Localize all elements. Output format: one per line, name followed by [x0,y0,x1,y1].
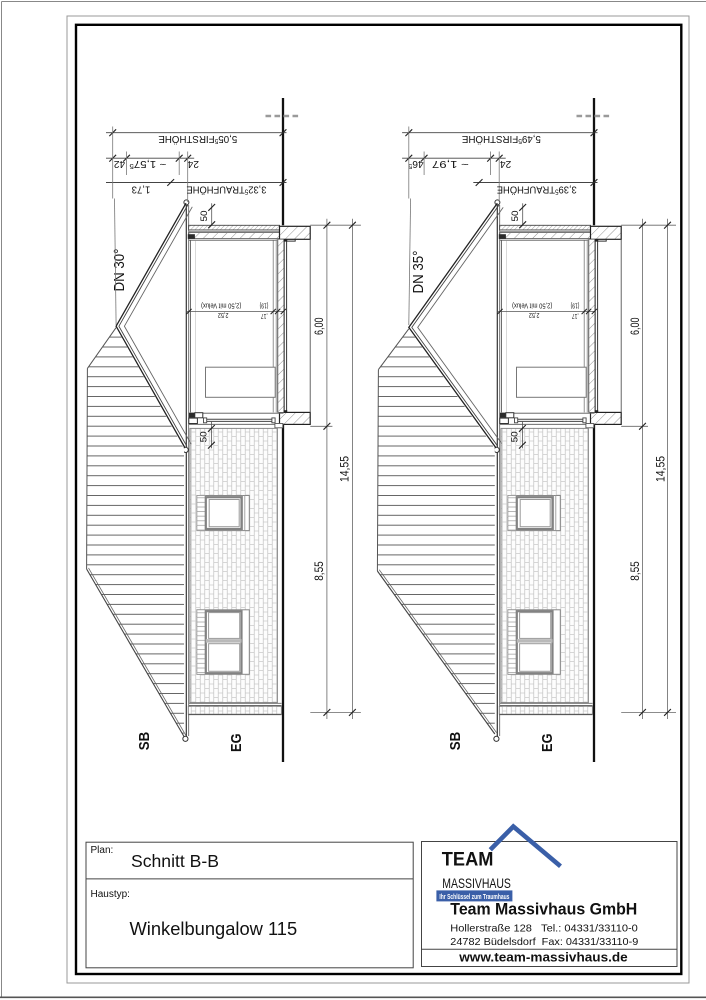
svg-text:5,055FIRSTHÖHE: 5,055FIRSTHÖHE [158,133,237,145]
svg-text:24: 24 [187,158,199,169]
svg-text:TEAM: TEAM [442,849,494,871]
svg-text:8,55: 8,55 [312,561,326,581]
svg-text:42: 42 [114,158,126,169]
svg-text:8,55: 8,55 [628,561,642,581]
svg-text:24: 24 [500,158,512,169]
svg-text:(2,50 mit Velux): (2,50 mit Velux) [201,301,241,310]
svg-text:1,73: 1,73 [131,183,150,194]
svg-text:Winkelbungalow 115: Winkelbungalow 115 [130,918,298,939]
svg-text:3,325TRAUFHÖHE: 3,325TRAUFHÖHE [186,183,266,195]
svg-text:14,55: 14,55 [653,456,667,482]
svg-text:Plan:: Plan: [91,845,114,856]
svg-text:Haustyp:: Haustyp: [91,889,130,900]
svg-text:DN 30°: DN 30° [111,248,128,291]
svg-text:50: 50 [199,211,210,222]
svg-text:~ 1,575: ~ 1,575 [129,158,166,169]
svg-text:14,55: 14,55 [338,456,352,482]
svg-text:3,395TRAUFHÖHE: 3,395TRAUFHÖHE [497,183,577,195]
svg-text:2,52: 2,52 [218,311,229,320]
svg-text:www.team-massivhaus.de: www.team-massivhaus.de [458,951,628,965]
svg-text:DN 35°: DN 35° [410,250,427,293]
svg-text:24782 Büdelsdorf Fax: 04331/3: 24782 Büdelsdorf Fax: 04331/33110-9 [450,937,638,948]
svg-text:5,495FIRSTHÖHE: 5,495FIRSTHÖHE [462,133,541,145]
svg-text:465: 465 [408,158,423,169]
svg-text:MASSIVHAUS: MASSIVHAUS [442,876,511,891]
svg-text:Hollerstraße 128 Tel.: 04331: Hollerstraße 128 Tel.: 04331/33110-0 [450,923,638,934]
svg-text:(19): (19) [260,301,269,310]
svg-text:SB: SB [137,732,153,751]
svg-text:Team Massivhaus GmbH: Team Massivhaus GmbH [450,900,637,919]
svg-text:6,00: 6,00 [628,317,642,335]
svg-text:~ 1,97: ~ 1,97 [432,158,469,169]
svg-text:EG: EG [229,733,245,752]
svg-text:6,00: 6,00 [312,317,326,335]
svg-text:Schnitt B-B: Schnitt B-B [131,851,219,871]
svg-text:,17: ,17 [261,312,268,321]
svg-text:50: 50 [199,431,210,442]
